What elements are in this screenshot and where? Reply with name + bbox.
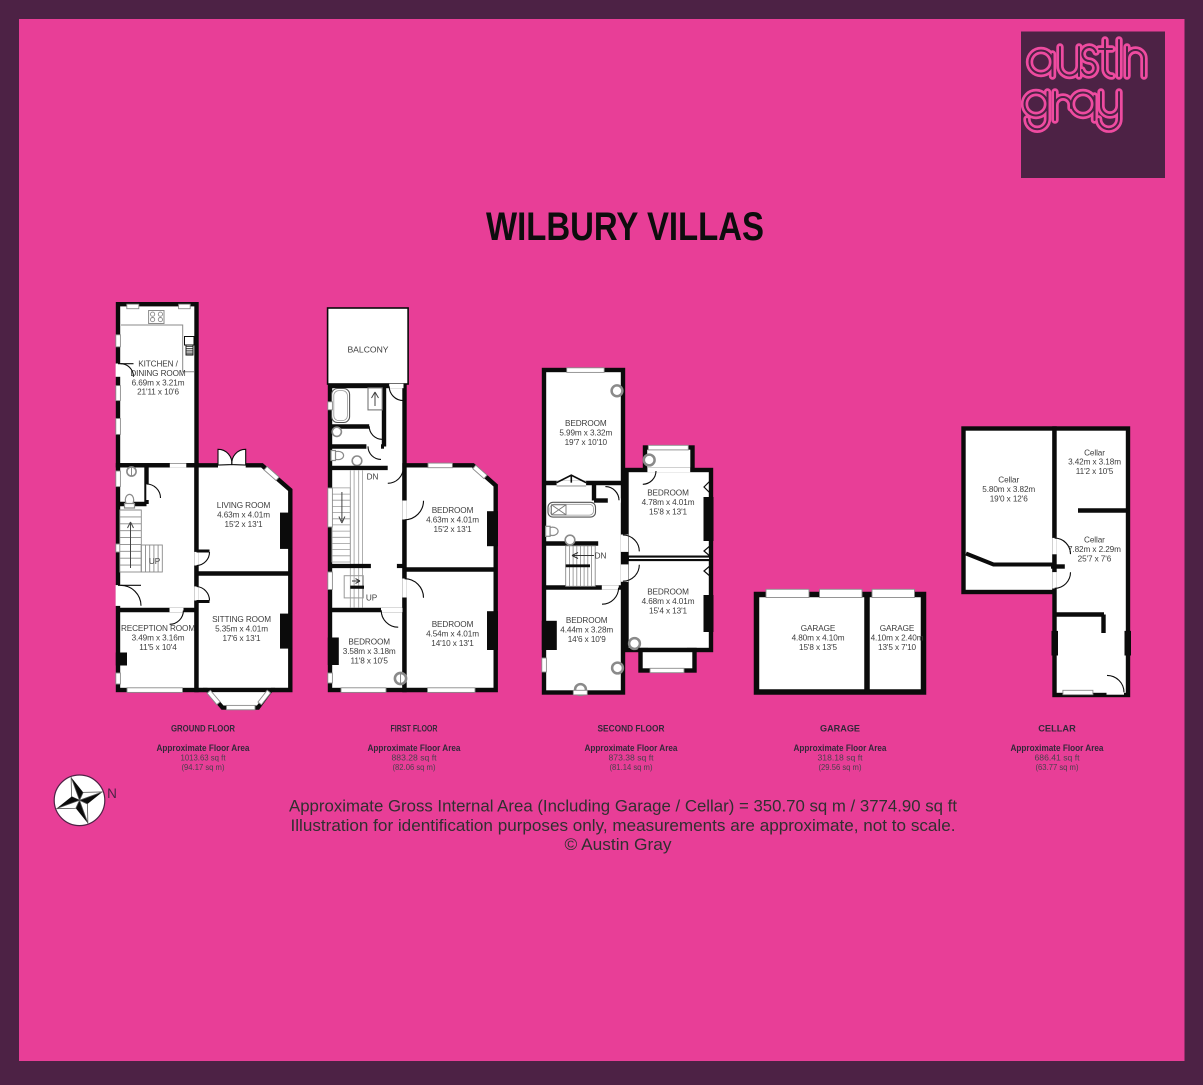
svg-text:BALCONY: BALCONY (347, 345, 388, 355)
svg-text:N: N (107, 786, 117, 801)
svg-text:(82.06 sq m): (82.06 sq m) (393, 762, 436, 772)
svg-text:(94.17 sq m): (94.17 sq m) (182, 762, 225, 772)
svg-text:1013.63 sq ft: 1013.63 sq ft (181, 752, 227, 762)
svg-text:15'2 x 13'1: 15'2 x 13'1 (434, 525, 473, 534)
svg-text:15'8 x 13'5: 15'8 x 13'5 (799, 643, 838, 652)
svg-text:15'8 x 13'1: 15'8 x 13'1 (649, 507, 688, 516)
svg-text:11'2 x 10'5: 11'2 x 10'5 (1076, 467, 1114, 476)
svg-text:BEDROOM: BEDROOM (348, 638, 390, 647)
svg-text:BEDROOM: BEDROOM (432, 506, 474, 515)
svg-text:RECEPTION ROOM: RECEPTION ROOM (121, 624, 195, 633)
svg-text:DINING ROOM: DINING ROOM (130, 369, 186, 378)
svg-text:LIVING ROOM: LIVING ROOM (217, 501, 271, 510)
svg-text:318.18 sq ft: 318.18 sq ft (818, 752, 864, 762)
svg-text:4.78m x 4.01m: 4.78m x 4.01m (642, 498, 695, 507)
svg-text:5.35m x 4.01m: 5.35m x 4.01m (215, 624, 268, 633)
svg-text:4.63m x 4.01m: 4.63m x 4.01m (217, 510, 270, 519)
svg-text:686.41 sq ft: 686.41 sq ft (1035, 752, 1081, 762)
svg-text:GARAGE: GARAGE (820, 724, 861, 735)
svg-text:4.68m x 4.01m: 4.68m x 4.01m (642, 597, 695, 606)
svg-text:(29.56 sq m): (29.56 sq m) (819, 762, 862, 772)
svg-text:BEDROOM: BEDROOM (647, 489, 689, 498)
svg-text:15'4 x 13'1: 15'4 x 13'1 (649, 606, 688, 615)
svg-text:883.28 sq ft: 883.28 sq ft (392, 752, 438, 762)
svg-text:UP: UP (149, 557, 161, 566)
svg-text:4.80m x 4.10m: 4.80m x 4.10m (792, 633, 845, 642)
svg-text:7.82m x 2.29m: 7.82m x 2.29m (1068, 545, 1121, 554)
svg-text:3.58m x 3.18m: 3.58m x 3.18m (343, 647, 396, 656)
svg-text:4.63m x 4.01m: 4.63m x 4.01m (426, 515, 479, 524)
svg-text:Cellar: Cellar (998, 476, 1019, 485)
svg-text:15'2 x 13'1: 15'2 x 13'1 (225, 520, 264, 529)
svg-text:GARAGE: GARAGE (801, 624, 836, 633)
svg-text:(81.14 sq m): (81.14 sq m) (610, 762, 653, 772)
svg-text:Cellar: Cellar (1084, 536, 1105, 545)
svg-text:FIRST FLOOR: FIRST FLOOR (391, 724, 438, 735)
svg-text:6.69m x 3.21m: 6.69m x 3.21m (132, 378, 185, 387)
svg-text:19'7 x 10'10: 19'7 x 10'10 (565, 438, 608, 447)
svg-text:SITTING ROOM: SITTING ROOM (212, 615, 271, 624)
svg-text:WILBURY VILLAS: WILBURY VILLAS (486, 205, 764, 249)
svg-text:SECOND FLOOR: SECOND FLOOR (598, 724, 665, 735)
svg-text:3.42m x 3.18m: 3.42m x 3.18m (1068, 458, 1121, 467)
svg-text:DN: DN (367, 473, 379, 482)
svg-text:4.10m x 2.40m: 4.10m x 2.40m (871, 633, 924, 642)
svg-text:25'7 x 7'6: 25'7 x 7'6 (1078, 555, 1112, 564)
svg-text:BEDROOM: BEDROOM (432, 620, 474, 629)
svg-text:5.99m x 3.32m: 5.99m x 3.32m (559, 428, 612, 437)
svg-text:GARAGE: GARAGE (880, 624, 915, 633)
svg-text:4.54m x 4.01m: 4.54m x 4.01m (426, 629, 479, 638)
svg-text:3.49m x 3.16m: 3.49m x 3.16m (132, 633, 185, 642)
svg-text:GROUND FLOOR: GROUND FLOOR (171, 724, 235, 735)
svg-text:DN: DN (595, 552, 607, 561)
svg-text:11'5 x 10'4: 11'5 x 10'4 (139, 643, 177, 652)
svg-text:17'6 x 13'1: 17'6 x 13'1 (223, 634, 262, 643)
svg-text:BEDROOM: BEDROOM (566, 616, 608, 625)
svg-text:CELLAR: CELLAR (1038, 724, 1076, 735)
svg-text:5.80m x 3.82m: 5.80m x 3.82m (982, 485, 1035, 494)
svg-text:873.38 sq ft: 873.38 sq ft (609, 752, 655, 762)
svg-text:UP: UP (366, 594, 378, 603)
svg-text:19'0 x 12'6: 19'0 x 12'6 (990, 494, 1029, 503)
svg-text:Illustration for identificatio: Illustration for identification purposes… (291, 817, 956, 835)
svg-text:© Austin Gray: © Austin Gray (565, 836, 673, 854)
svg-text:Approximate Gross Internal Are: Approximate Gross Internal Area (Includi… (289, 798, 958, 816)
svg-text:KITCHEN /: KITCHEN / (138, 360, 178, 369)
svg-text:11'8 x 10'5: 11'8 x 10'5 (351, 656, 389, 665)
svg-text:BEDROOM: BEDROOM (647, 588, 689, 597)
svg-text:13'5 x 7'10: 13'5 x 7'10 (878, 643, 917, 652)
svg-text:14'6 x 10'9: 14'6 x 10'9 (568, 635, 607, 644)
svg-text:Cellar: Cellar (1084, 448, 1105, 457)
svg-text:14'10 x 13'1: 14'10 x 13'1 (431, 639, 474, 648)
svg-text:BEDROOM: BEDROOM (565, 419, 607, 428)
svg-text:(63.77 sq m): (63.77 sq m) (1036, 762, 1079, 772)
svg-text:4.44m x 3.28m: 4.44m x 3.28m (560, 625, 613, 634)
svg-text:21'11 x 10'6: 21'11 x 10'6 (137, 388, 179, 397)
